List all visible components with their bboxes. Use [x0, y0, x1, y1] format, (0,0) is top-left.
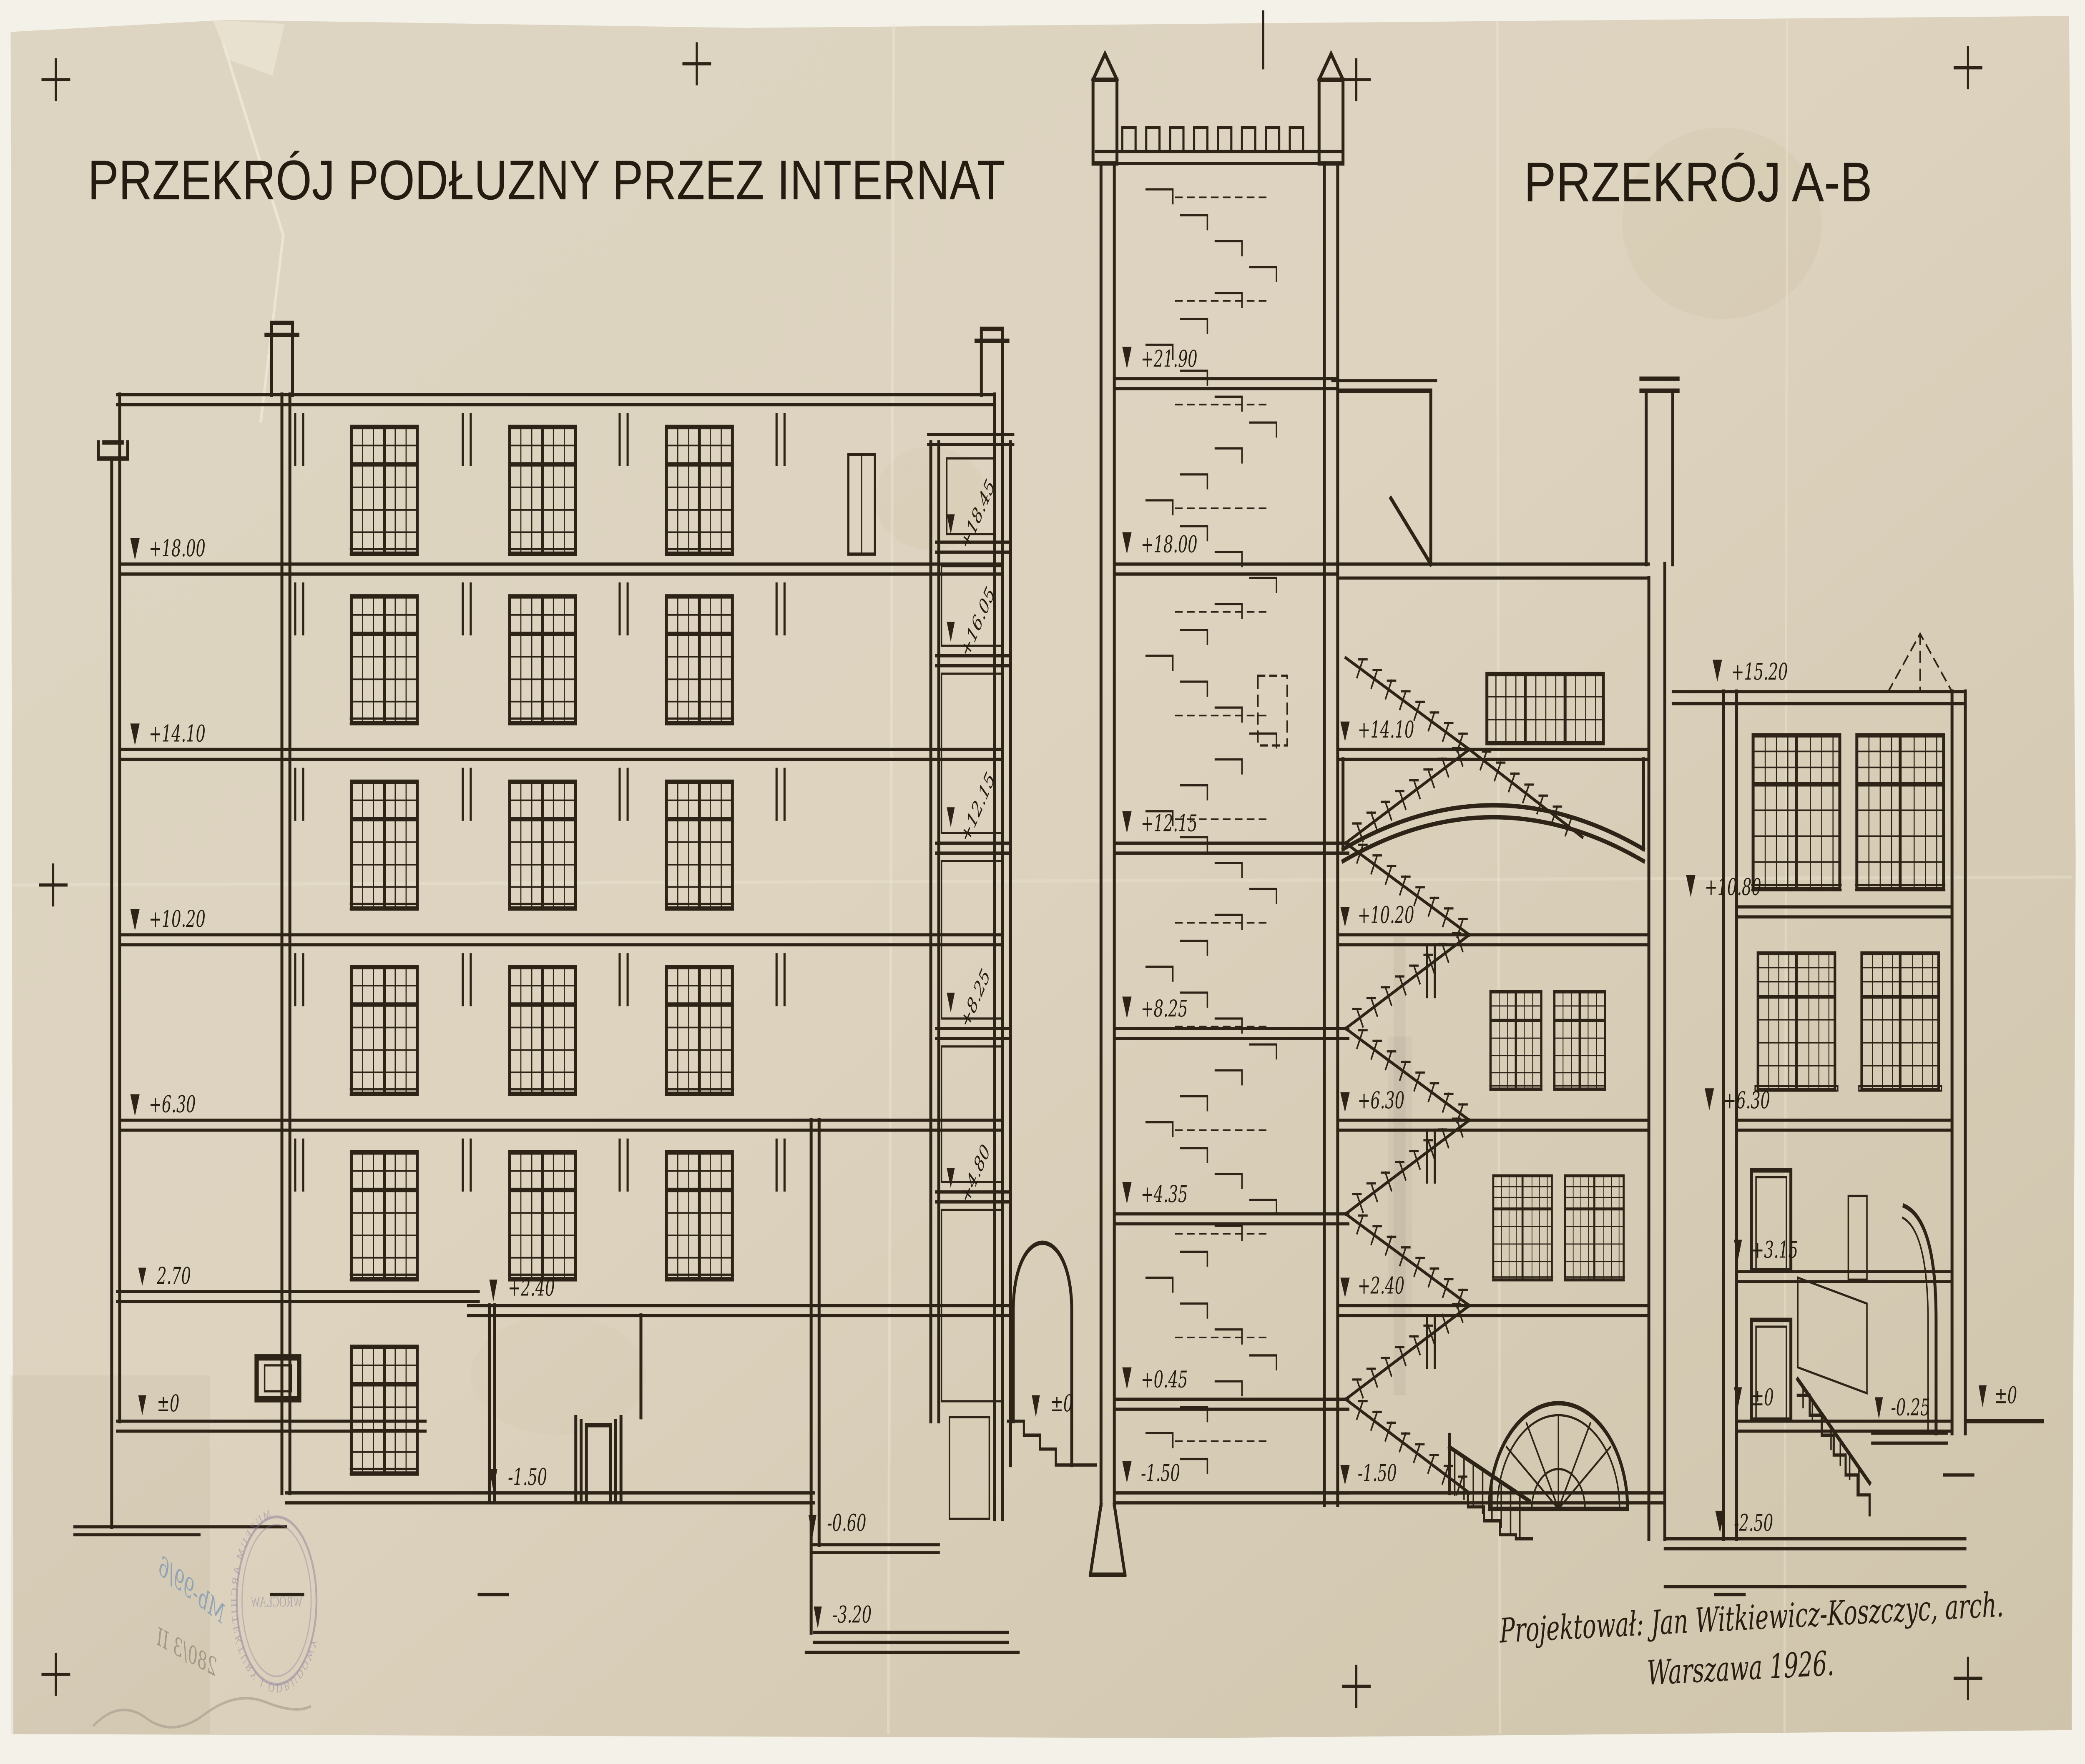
- title-left-text: PRZEKRÓJ PODŁUZNY PRZEZ INTERNAT: [88, 148, 1005, 211]
- title-right: PRZEKRÓJ A-B: [1524, 151, 1872, 213]
- mark-label: +6.30: [149, 1092, 196, 1118]
- title-left: PRZEKRÓJ PODŁUZNY PRZEZ INTERNAT: [88, 148, 1005, 211]
- mark-label: +21.90: [1141, 346, 1198, 373]
- mark-label: ±0: [1050, 1390, 1073, 1417]
- mark-label: +2.40: [1358, 1273, 1404, 1300]
- mark-label: +6.30: [1723, 1088, 1770, 1114]
- paper-sheet: [11, 16, 2076, 1738]
- mark-label: +2.40: [508, 1275, 555, 1302]
- mark-label: +12.15: [1141, 810, 1198, 837]
- mark-label: +14.10: [149, 721, 206, 748]
- mark-label: +10.80: [1705, 874, 1761, 901]
- mark-label: +18.00: [1141, 532, 1198, 558]
- mark-label: +10.20: [149, 906, 206, 933]
- mark-label: +4.35: [1141, 1181, 1188, 1208]
- mark-label: -1.50: [1358, 1460, 1397, 1487]
- mark-label: ±0: [157, 1390, 179, 1417]
- mark-label: +0.45: [1141, 1367, 1188, 1393]
- mark-label: +6.30: [1358, 1088, 1404, 1114]
- mark-label: ±0: [1995, 1383, 2017, 1409]
- mark-label: -2.50: [1734, 1510, 1773, 1537]
- mark-label: -0.60: [827, 1510, 866, 1537]
- mark-label: -0.25: [1891, 1395, 1930, 1421]
- mark-label: +10.20: [1358, 902, 1414, 929]
- mark-label: 2.70: [156, 1263, 191, 1290]
- mark-label: +14.10: [1358, 717, 1414, 743]
- mark-label: -1.50: [508, 1464, 547, 1491]
- mark-label: +3.15: [1751, 1237, 1798, 1264]
- title-right-text: PRZEKRÓJ A-B: [1524, 151, 1872, 213]
- mark-label: -1.50: [1141, 1460, 1180, 1487]
- mark-label: +18.00: [149, 535, 206, 562]
- mark-label: +8.25: [1141, 996, 1188, 1023]
- mark-label: -3.20: [832, 1602, 872, 1629]
- mark-label: +15.20: [1731, 659, 1788, 686]
- architectural-drawing-sheet: PRZEKRÓJ PODŁUZNY PRZEZ INTERNAT PRZEKRÓ…: [0, 0, 2085, 1764]
- mark-label: ±0: [1751, 1385, 1774, 1411]
- stamp-center-text: WROCŁAW: [251, 1593, 302, 1610]
